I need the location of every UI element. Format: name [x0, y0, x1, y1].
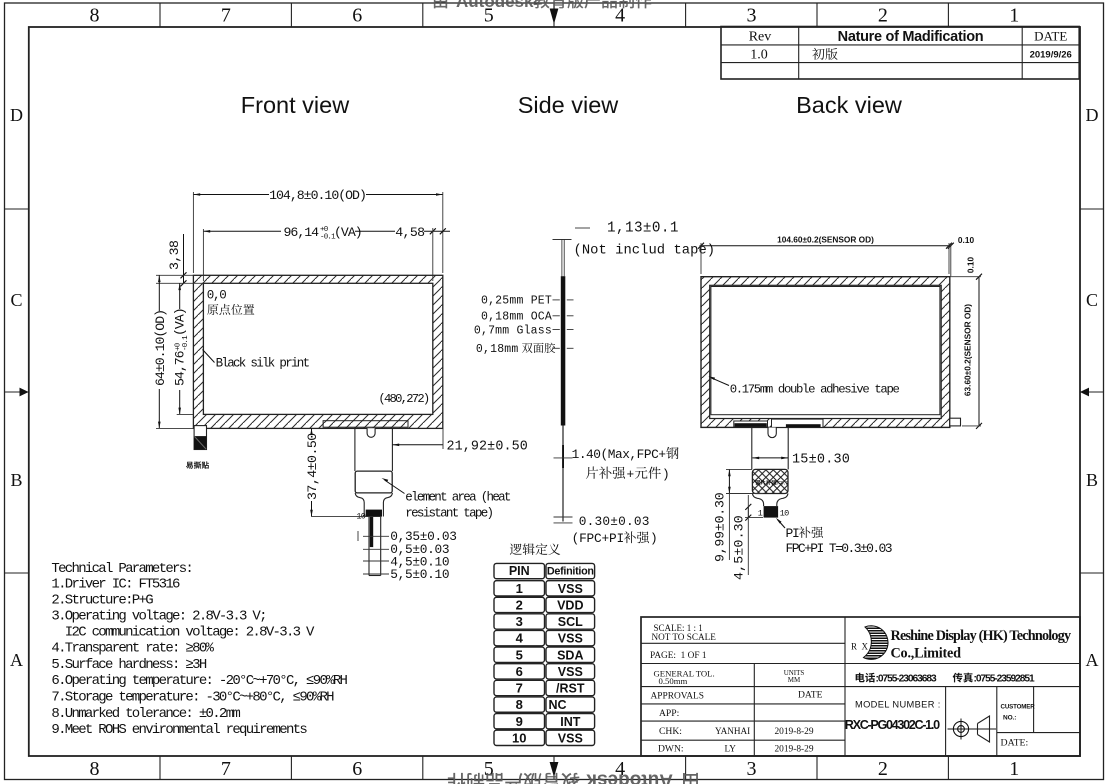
svg-text:2019-8-29: 2019-8-29 — [774, 745, 813, 755]
svg-text:NC: NC — [549, 698, 567, 712]
svg-text:APP:: APP: — [659, 708, 679, 719]
svg-text:3,38: 3,38 — [167, 240, 182, 270]
svg-text:63.60±0.2(SENSOR OD): 63.60±0.2(SENSOR OD) — [963, 304, 973, 396]
svg-text:Autodesk: Autodesk — [586, 770, 673, 784]
svg-text:NO.:: NO.: — [1003, 715, 1016, 722]
svg-text:Autodesk: Autodesk — [456, 0, 534, 11]
svg-text:5: 5 — [516, 647, 523, 662]
svg-text:Technical Parameters:: Technical Parameters: — [51, 561, 192, 577]
svg-text:0.175mm double adhesive tape: 0.175mm double adhesive tape — [730, 383, 900, 397]
svg-text:8: 8 — [90, 5, 100, 27]
svg-text::0755-23592851: :0755-23592851 — [974, 674, 1035, 685]
svg-text:D: D — [10, 105, 23, 125]
svg-text:1: 1 — [758, 509, 763, 519]
svg-text:96,14: 96,14 — [284, 225, 320, 240]
svg-text:/RST: /RST — [556, 682, 585, 696]
svg-text:3: 3 — [747, 758, 757, 780]
svg-text:4,5±0.30: 4,5±0.30 — [732, 515, 747, 580]
svg-text:5,5±0.10: 5,5±0.10 — [390, 567, 449, 582]
svg-text:6.Operating temperature: -20°C: 6.Operating temperature: -20°C~+70°C, ≤9… — [51, 673, 347, 689]
svg-text:B: B — [10, 470, 22, 490]
svg-text:Back view: Back view — [796, 92, 903, 118]
svg-text:21,92±0.50: 21,92±0.50 — [447, 439, 528, 454]
svg-text:I2C communication voltage: 2.8: I2C communication voltage: 2.8V-3.3 V — [51, 624, 315, 640]
svg-text:MODEL NUMBER :: MODEL NUMBER : — [855, 700, 941, 710]
svg-text:3: 3 — [747, 5, 757, 27]
svg-text:(Not includ tape): (Not includ tape) — [574, 243, 716, 259]
svg-text:+: + — [627, 467, 634, 482]
svg-text:A: A — [1086, 650, 1099, 670]
svg-text:0,0: 0,0 — [207, 289, 226, 303]
svg-text:2: 2 — [878, 758, 888, 780]
svg-text:54,76: 54,76 — [172, 350, 187, 386]
svg-text:9.Meet ROHS environmental requ: 9.Meet ROHS environmental requirements — [51, 722, 307, 738]
svg-text:37,4±0.50: 37,4±0.50 — [305, 433, 320, 500]
svg-text:104,8±0.10(OD): 104,8±0.10(OD) — [269, 188, 366, 203]
svg-text:10: 10 — [780, 509, 789, 519]
svg-text:Black silk print: Black silk print — [216, 357, 310, 371]
svg-text:VSS: VSS — [558, 632, 583, 646]
svg-text:9: 9 — [516, 714, 523, 729]
svg-text:1,13±0.1: 1,13±0.1 — [607, 221, 679, 237]
svg-text:PIN: PIN — [509, 564, 530, 578]
svg-text:8: 8 — [90, 758, 100, 780]
svg-text:D: D — [1086, 105, 1099, 125]
svg-text:2019/9/26: 2019/9/26 — [1030, 50, 1072, 61]
svg-text:2019-8-29: 2019-8-29 — [774, 727, 813, 737]
svg-text:DWN:: DWN: — [658, 744, 684, 755]
svg-text:element area (heat: element area (heat — [405, 491, 511, 505]
svg-text:8: 8 — [516, 697, 523, 712]
svg-text:0,25mm PET: 0,25mm PET — [481, 295, 552, 308]
svg-text:0.10: 0.10 — [966, 257, 976, 274]
svg-text:0.30±0.03: 0.30±0.03 — [579, 514, 650, 529]
svg-text:0,18mm OCA: 0,18mm OCA — [481, 311, 552, 324]
svg-text:Front view: Front view — [241, 92, 350, 118]
svg-text:R: R — [851, 642, 857, 652]
svg-text:Rev: Rev — [749, 30, 772, 45]
svg-text:0,18mm: 0,18mm — [476, 343, 519, 356]
svg-text:Co.,Limited: Co.,Limited — [891, 646, 962, 662]
svg-text:7.Storage temperature: -30°C~+: 7.Storage temperature: -30°C~+80°C, ≤90%… — [51, 690, 334, 706]
svg-text:0.10: 0.10 — [958, 235, 975, 245]
svg-text:Side view: Side view — [518, 92, 620, 118]
svg-text:4,58: 4,58 — [395, 225, 425, 240]
svg-text:C: C — [1086, 290, 1098, 310]
svg-text:6: 6 — [352, 5, 362, 27]
svg-text:PAGE: 1 OF 1: PAGE: 1 OF 1 — [650, 651, 707, 661]
svg-text:Definition: Definition — [547, 566, 594, 578]
svg-text:8.Unmarked tolerance: ±0.2mm: 8.Unmarked tolerance: ±0.2mm — [51, 706, 240, 722]
svg-text:Nature of Madification: Nature of Madification — [838, 29, 984, 45]
svg-text:X: X — [862, 642, 869, 652]
svg-text:3: 3 — [516, 614, 523, 629]
svg-text:): ) — [650, 531, 657, 546]
svg-text:DATE: DATE — [1034, 29, 1067, 44]
svg-text:1.Driver IC: FT5316: 1.Driver IC: FT5316 — [51, 577, 180, 593]
svg-text:10: 10 — [512, 730, 526, 745]
svg-text:7: 7 — [221, 758, 231, 780]
svg-text:1: 1 — [1009, 758, 1019, 780]
svg-text:104.60±0.2(SENSOR OD): 104.60±0.2(SENSOR OD) — [777, 235, 874, 245]
svg-text:64±0.10(OD): 64±0.10(OD) — [153, 310, 168, 386]
svg-text:T=0.2: T=0.2 — [776, 480, 789, 486]
svg-text:SDA: SDA — [557, 648, 583, 662]
svg-text:VSS: VSS — [558, 731, 583, 745]
svg-text:PI: PI — [786, 526, 800, 541]
svg-text:4.Transparent rate: ≥80%: 4.Transparent rate: ≥80% — [51, 641, 214, 657]
svg-text:VDD: VDD — [557, 598, 583, 612]
svg-text:CUSTOMER: CUSTOMER — [1001, 704, 1036, 711]
svg-text:resistant tape): resistant tape) — [405, 506, 492, 520]
svg-text:CHK:: CHK: — [659, 726, 682, 737]
svg-text:(FPC+PI: (FPC+PI — [572, 531, 624, 546]
svg-text:VSS: VSS — [558, 582, 583, 596]
svg-text:2.Structure:P+G: 2.Structure:P+G — [51, 593, 153, 609]
svg-text:): ) — [662, 467, 669, 482]
svg-text:APPROVALS: APPROVALS — [651, 692, 705, 702]
svg-text:DATE: DATE — [798, 690, 823, 701]
svg-text:9,99±0.30: 9,99±0.30 — [713, 492, 728, 562]
svg-text:1.0: 1.0 — [750, 48, 768, 63]
svg-text:15±0.30: 15±0.30 — [792, 453, 850, 468]
svg-text:0.50mm: 0.50mm — [659, 676, 688, 686]
svg-text:0,7mm Glass: 0,7mm Glass — [474, 324, 552, 337]
svg-text:2: 2 — [516, 597, 523, 612]
svg-text:MM: MM — [788, 676, 801, 684]
svg-text:2: 2 — [878, 5, 888, 27]
svg-text:FPC+PI T=0.3±0.03: FPC+PI T=0.3±0.03 — [786, 541, 892, 556]
svg-text:NOT TO SCALE: NOT TO SCALE — [652, 632, 717, 642]
svg-text:B: B — [1086, 470, 1098, 490]
svg-text:VSS: VSS — [558, 665, 583, 679]
svg-text:1: 1 — [516, 581, 523, 596]
svg-text:SCL: SCL — [558, 615, 583, 629]
svg-text:(VA): (VA) — [334, 225, 362, 240]
svg-text:-0.1: -0.1 — [182, 335, 190, 351]
svg-text:4: 4 — [516, 631, 524, 646]
svg-text:(VA): (VA) — [172, 308, 187, 336]
svg-text::0755-23063683: :0755-23063683 — [876, 674, 937, 685]
svg-text:(480,272): (480,272) — [378, 392, 429, 406]
svg-text:6: 6 — [516, 664, 523, 679]
svg-text:DATE:: DATE: — [1001, 738, 1029, 749]
svg-text:1.40(Max,FPC+: 1.40(Max,FPC+ — [572, 447, 666, 462]
svg-text:YANHAI: YANHAI — [715, 726, 750, 736]
svg-text:7: 7 — [221, 5, 231, 27]
svg-text:INT: INT — [560, 715, 581, 729]
svg-text:3.Operating voltage: 2.8V-3.3: 3.Operating voltage: 2.8V-3.3 V; — [51, 609, 265, 625]
svg-text:1: 1 — [1009, 5, 1019, 27]
svg-text:5.Surface hardness: ≥3H: 5.Surface hardness: ≥3H — [51, 657, 206, 673]
svg-text:LY: LY — [725, 744, 737, 754]
svg-text:7: 7 — [516, 681, 523, 696]
svg-text:A: A — [10, 650, 23, 670]
svg-text:Reshine Display (HK) Technolog: Reshine Display (HK) Technology — [891, 628, 1071, 644]
svg-text:RXC-PG04302C-1.0: RXC-PG04302C-1.0 — [845, 718, 940, 732]
svg-text:6: 6 — [352, 758, 362, 780]
svg-text:C: C — [10, 290, 22, 310]
